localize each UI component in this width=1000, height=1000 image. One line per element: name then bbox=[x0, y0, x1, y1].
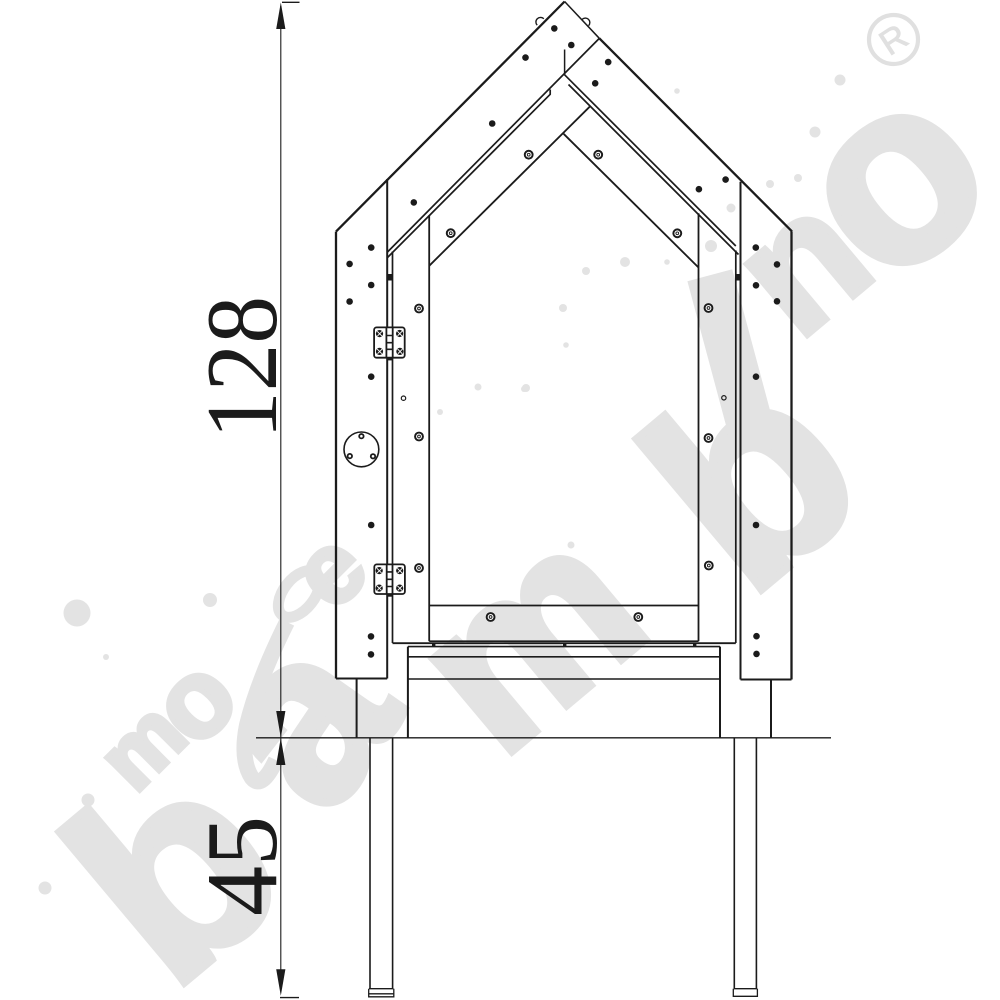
svg-text:e: e bbox=[270, 511, 389, 630]
svg-text:128: 128 bbox=[186, 296, 299, 439]
svg-text:45: 45 bbox=[186, 816, 299, 916]
